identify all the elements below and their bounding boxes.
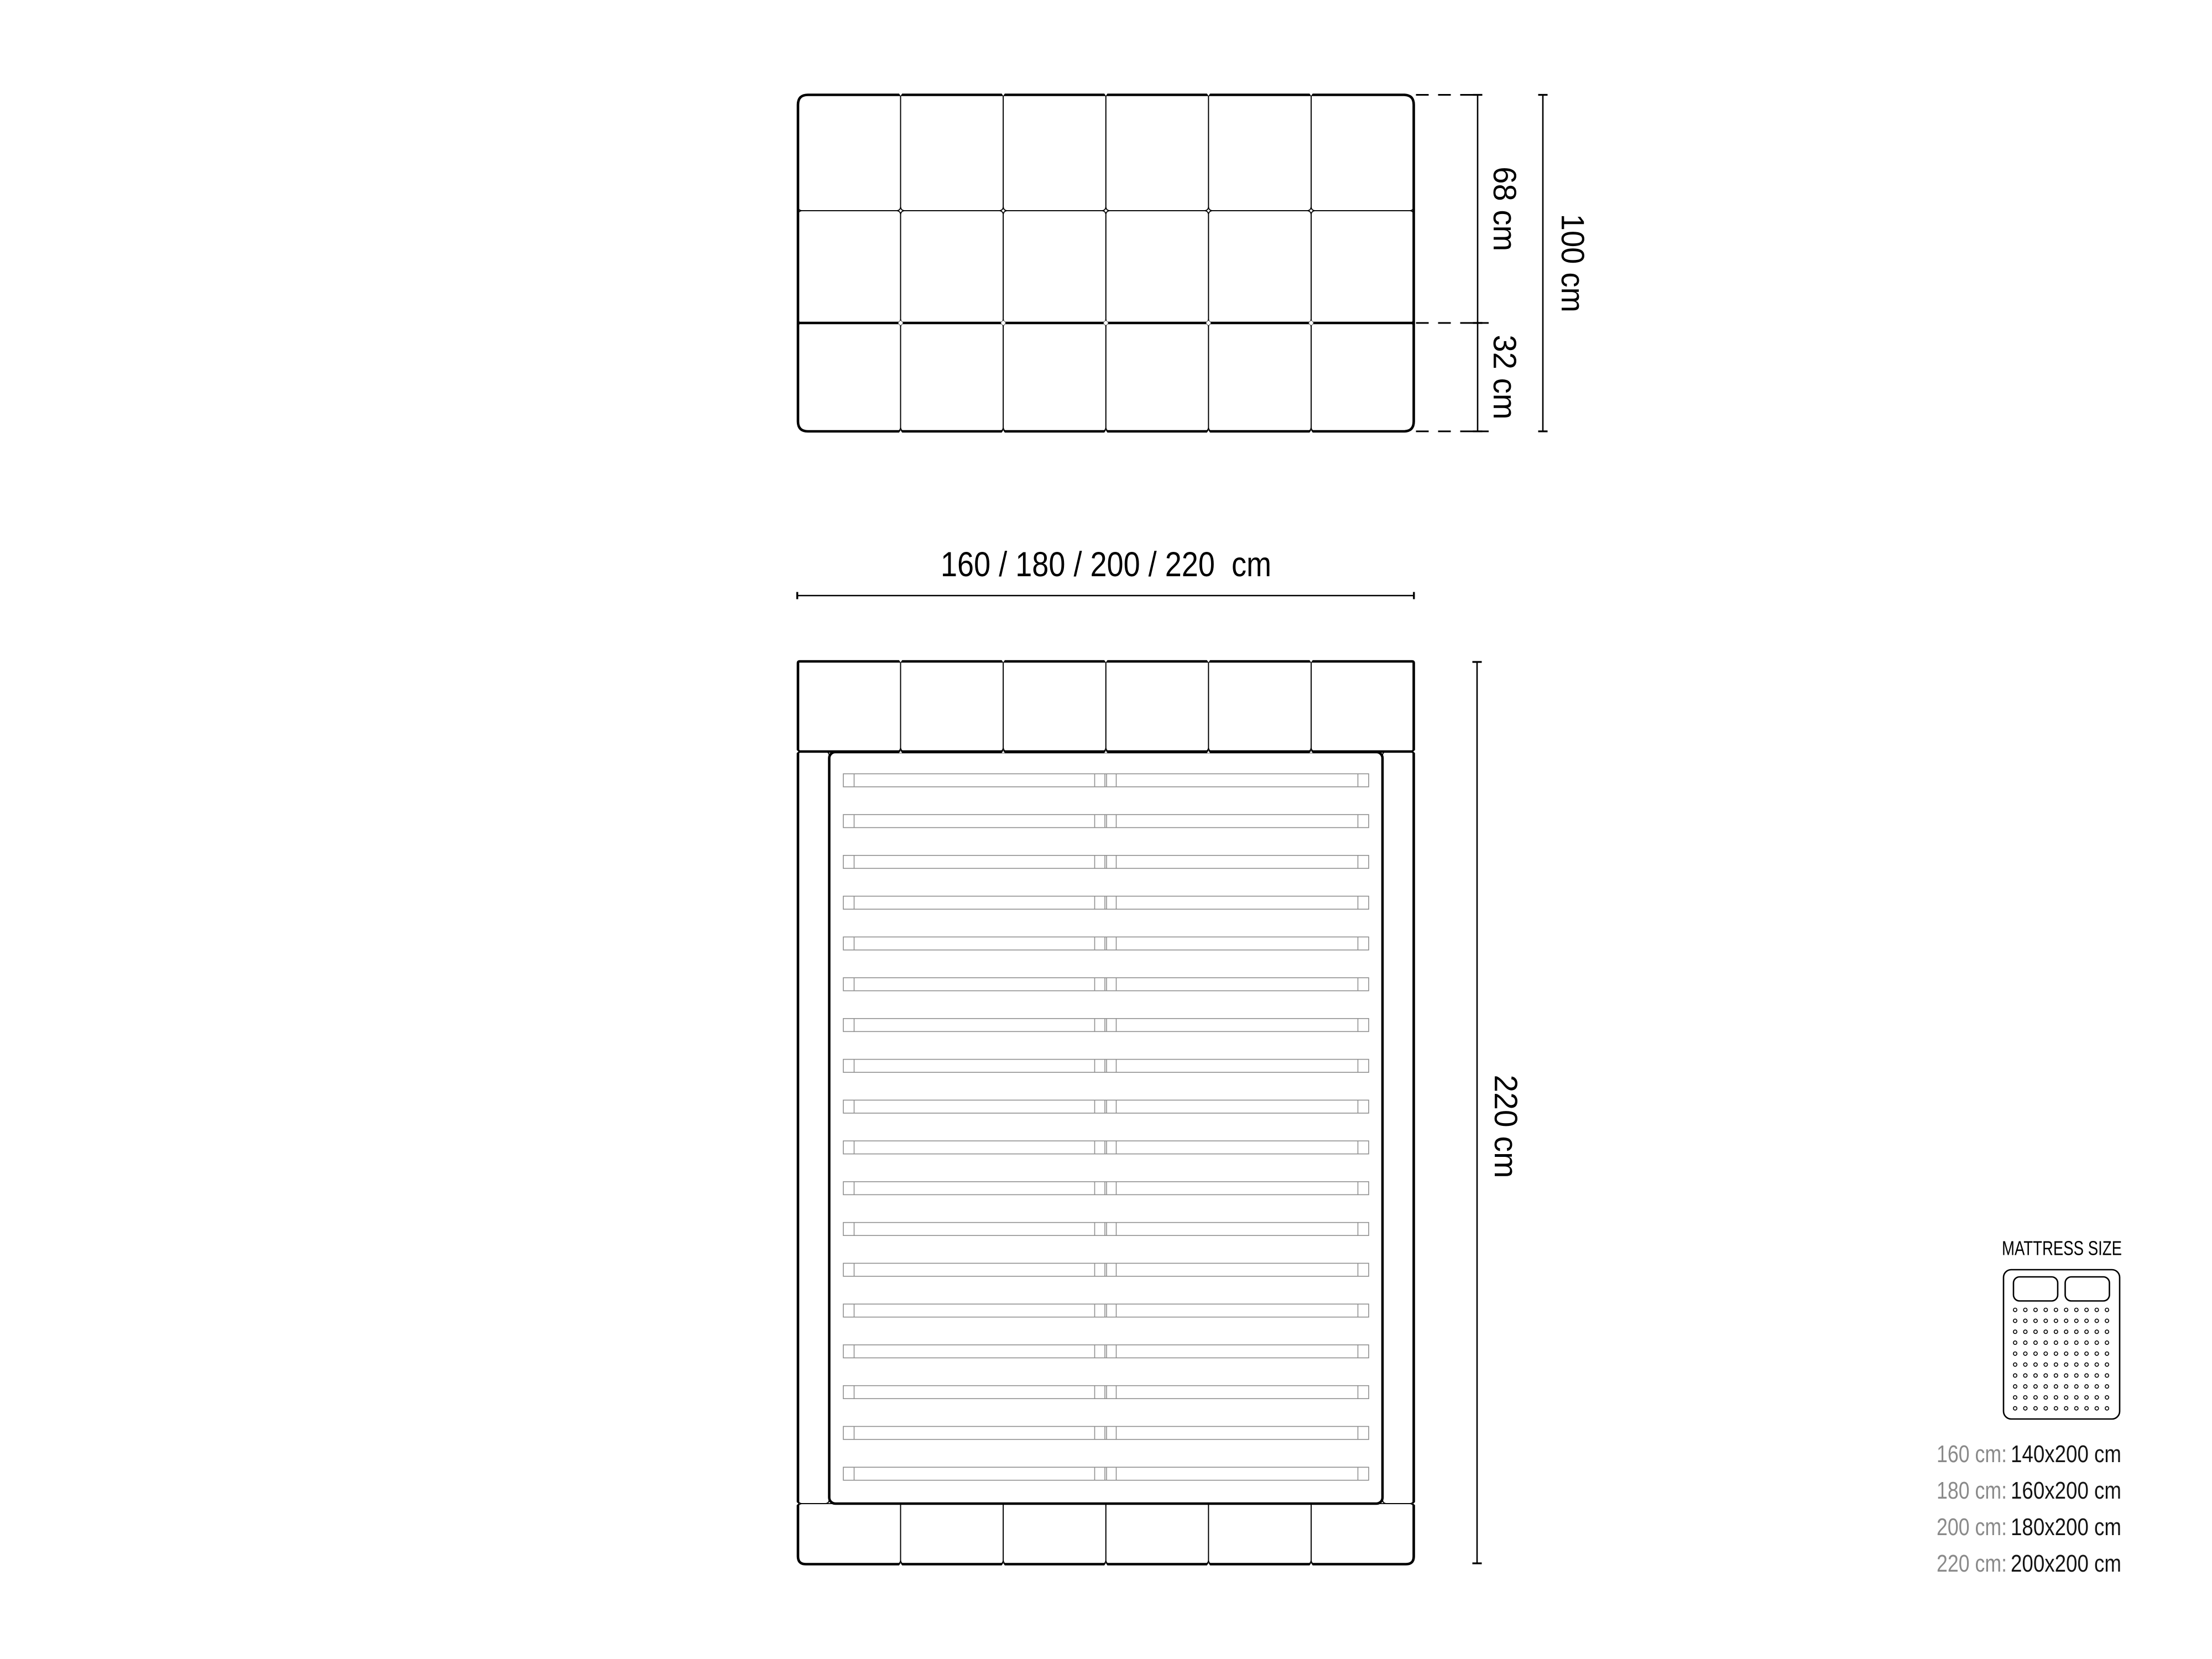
svg-text:32 cm: 32 cm (1486, 335, 1522, 420)
svg-text:160 cm:: 160 cm: (1937, 1441, 2007, 1468)
svg-text:200x200 cm: 200x200 cm (2011, 1550, 2121, 1577)
svg-text:200 cm:: 200 cm: (1937, 1514, 2007, 1541)
svg-text:MATTRESS SIZE: MATTRESS SIZE (2002, 1237, 2122, 1260)
svg-text:220 cm: 220 cm (1488, 1075, 1524, 1178)
svg-text:180x200 cm: 180x200 cm (2011, 1514, 2121, 1541)
svg-text:140x200 cm: 140x200 cm (2011, 1441, 2121, 1468)
svg-text:100 cm: 100 cm (1554, 214, 1590, 312)
svg-text:160 / 180 / 200 / 220 cm: 160 / 180 / 200 / 220 cm (941, 545, 1271, 584)
svg-text:160x200 cm: 160x200 cm (2011, 1477, 2121, 1504)
svg-text:68 cm: 68 cm (1486, 166, 1522, 251)
svg-text:180 cm:: 180 cm: (1937, 1477, 2007, 1504)
svg-text:220 cm:: 220 cm: (1937, 1550, 2007, 1577)
